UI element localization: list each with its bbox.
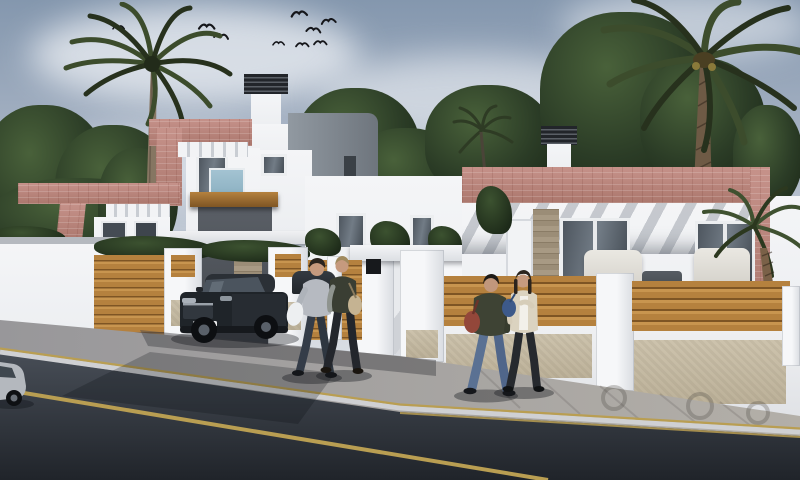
pedestrian-pair-center — [282, 256, 372, 384]
parked-suv — [171, 274, 299, 348]
silver-car-partial — [0, 362, 34, 409]
pedestrian-pair-right — [454, 270, 554, 403]
street-objects — [0, 0, 800, 480]
pedestrian — [464, 274, 516, 396]
architectural-render-scene — [0, 0, 800, 480]
